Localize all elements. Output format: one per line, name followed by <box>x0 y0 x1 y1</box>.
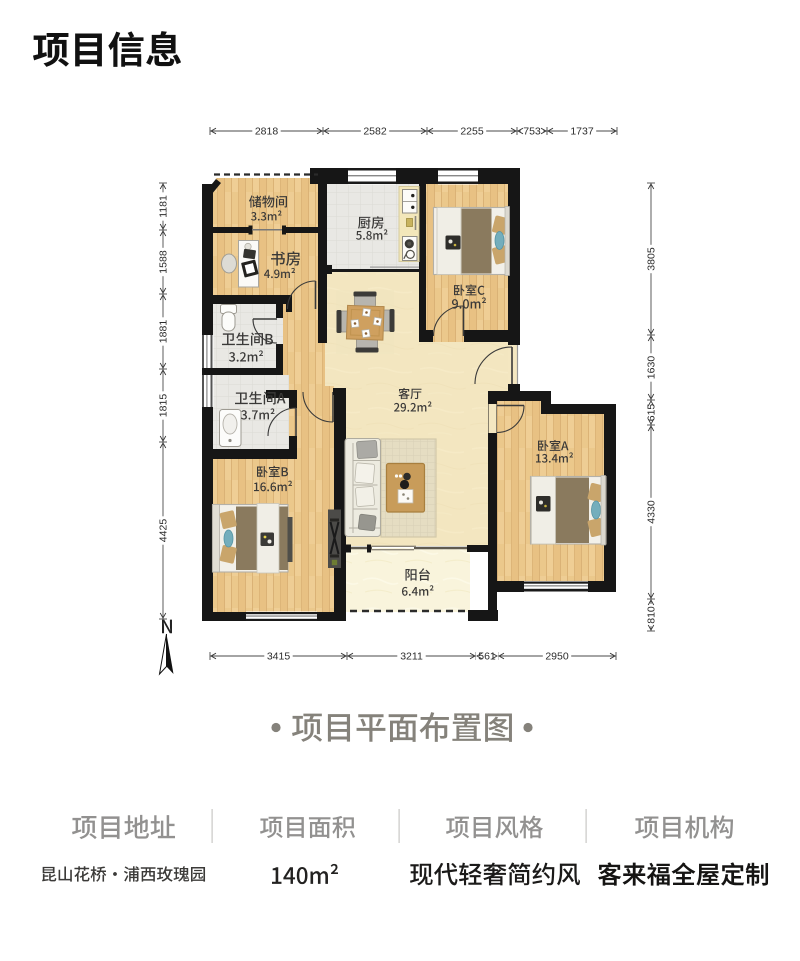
svg-text:2818: 2818 <box>255 126 279 138</box>
svg-text:3805: 3805 <box>646 247 658 271</box>
svg-text:2582: 2582 <box>363 126 387 138</box>
svg-text:810: 810 <box>646 606 658 624</box>
svg-text:561: 561 <box>478 651 496 663</box>
svg-text:3415: 3415 <box>267 651 291 663</box>
svg-text:1588: 1588 <box>158 250 170 274</box>
svg-text:1815: 1815 <box>158 394 170 418</box>
svg-text:1630: 1630 <box>646 356 658 380</box>
svg-text:4330: 4330 <box>646 500 658 524</box>
svg-text:2950: 2950 <box>545 651 569 663</box>
svg-text:753: 753 <box>523 126 541 138</box>
svg-text:3211: 3211 <box>400 651 423 663</box>
svg-text:615: 615 <box>646 404 658 422</box>
svg-text:1881: 1881 <box>158 320 170 344</box>
svg-text:1737: 1737 <box>570 126 594 138</box>
svg-text:2255: 2255 <box>460 126 484 138</box>
svg-text:1181: 1181 <box>158 195 170 218</box>
svg-text:4425: 4425 <box>158 519 170 543</box>
